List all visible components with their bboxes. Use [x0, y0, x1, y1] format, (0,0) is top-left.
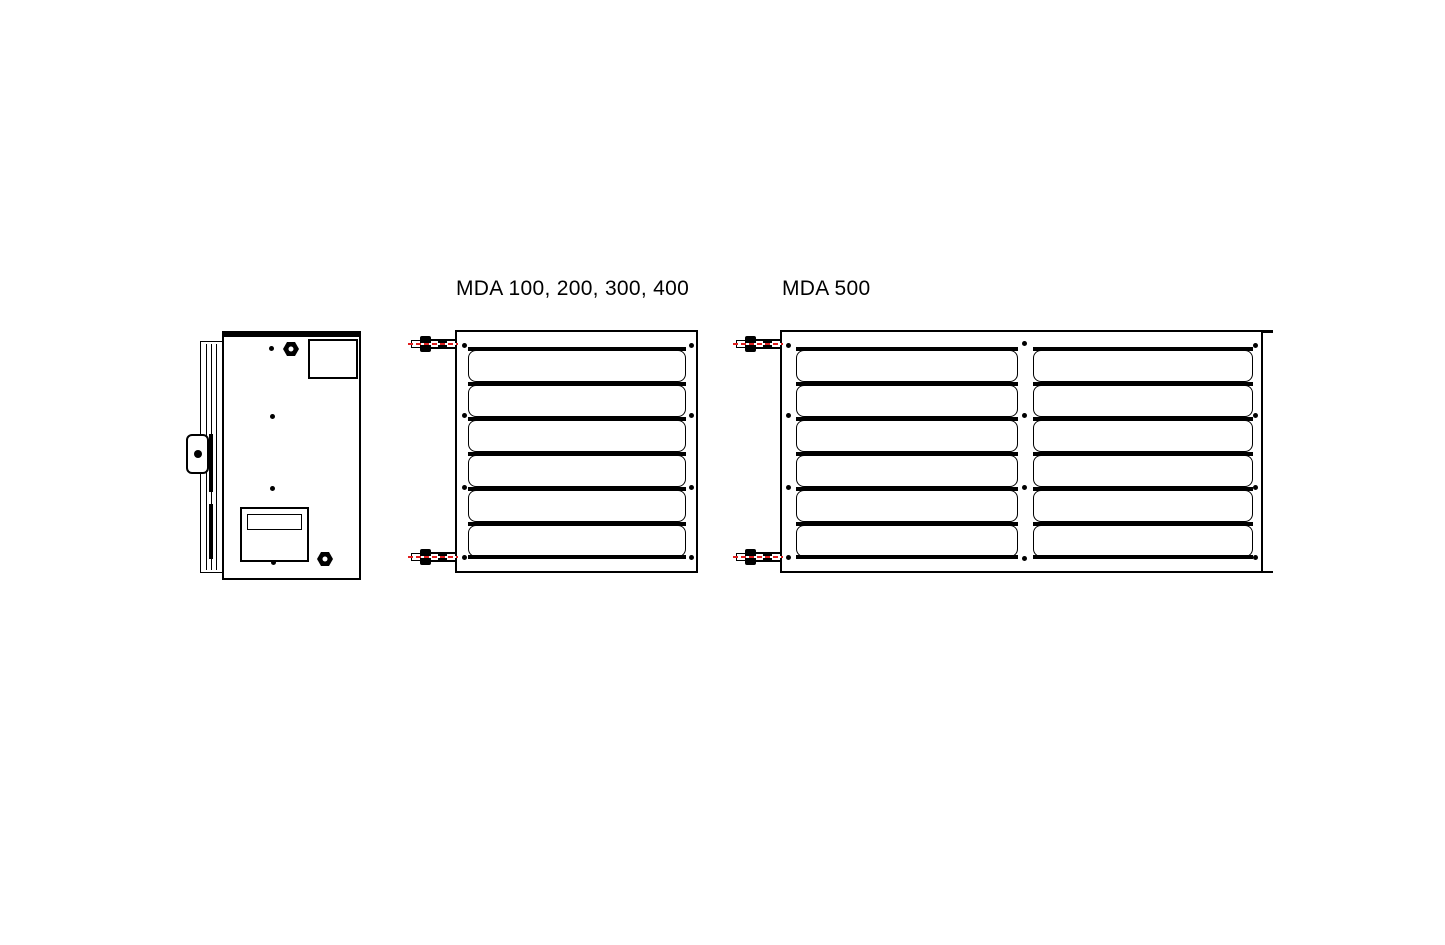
- hex-nut-icon: [283, 342, 299, 356]
- mda-small-title: MDA 100, 200, 300, 400: [456, 277, 689, 301]
- cabinet-body: [222, 331, 361, 580]
- cabinet-top-panel: [223, 332, 360, 337]
- mda-small-louvers: [468, 347, 686, 557]
- screw-dot: [462, 413, 467, 418]
- rating-plate-window: [247, 514, 302, 530]
- screw-dot: [689, 343, 694, 348]
- screw-dot: [786, 413, 791, 418]
- louver-slat: [796, 452, 1018, 487]
- pipe-centerline: [408, 343, 458, 346]
- louver-shadow-bar: [209, 504, 213, 559]
- screw-dot: [1253, 555, 1258, 560]
- mounting-bracket: [186, 434, 209, 474]
- screw-dot: [1253, 413, 1258, 418]
- screw-dot: [1022, 556, 1027, 561]
- screw-dot: [462, 343, 467, 348]
- louver-slat: [796, 417, 1018, 452]
- louver-slat: [468, 487, 686, 522]
- screw-dot: [689, 413, 694, 418]
- pipe-centerline: [733, 343, 783, 346]
- louver-slat: [796, 382, 1018, 417]
- technical-diagram-page: MDA 100, 200, 300, 400 MDA 500: [0, 0, 1445, 945]
- screw-dot: [1253, 343, 1258, 348]
- screw-dot: [689, 555, 694, 560]
- louver-slat: [468, 452, 686, 487]
- flange-tab-top: [1261, 330, 1273, 333]
- screw-dot: [270, 414, 275, 419]
- mda-500-title: MDA 500: [782, 277, 870, 301]
- screw-dot: [786, 555, 791, 560]
- louver-edge-line: [216, 344, 218, 570]
- louver-slat: [1033, 522, 1253, 557]
- screw-dot: [462, 555, 467, 560]
- screw-dot: [1253, 485, 1258, 490]
- pipe-connection-top: [736, 336, 782, 352]
- screw-dot: [271, 560, 276, 565]
- screw-dot: [1022, 341, 1027, 346]
- screw-dot: [269, 346, 274, 351]
- louver-shadow-bar: [209, 434, 213, 492]
- screw-dot: [786, 485, 791, 490]
- louver-slat: [468, 347, 686, 382]
- pipe-centerline: [733, 556, 783, 559]
- louver-slat: [1033, 417, 1253, 452]
- flange-tab-bottom: [1261, 571, 1273, 574]
- louver-slat: [796, 522, 1018, 557]
- mda-500-louvers-left: [796, 347, 1018, 557]
- hex-nut-icon: [317, 552, 333, 566]
- louver-slat: [1033, 382, 1253, 417]
- pipe-connection-top: [411, 336, 457, 352]
- rating-plate: [240, 507, 309, 562]
- screw-dot: [1022, 485, 1027, 490]
- louver-slat: [1033, 452, 1253, 487]
- mda-small-drawing: [455, 330, 698, 573]
- screw-dot: [462, 485, 467, 490]
- pipe-centerline: [408, 556, 458, 559]
- screw-dot: [270, 486, 275, 491]
- pipe-connection-bottom: [411, 549, 457, 565]
- louver-slat: [1033, 347, 1253, 382]
- screw-dot: [689, 485, 694, 490]
- terminal-box: [308, 339, 358, 379]
- louver-slat: [468, 522, 686, 557]
- mda-500-louvers-right: [1033, 347, 1253, 557]
- screw-dot: [786, 343, 791, 348]
- screw-dot: [1022, 413, 1027, 418]
- unit-side-view-drawing: [186, 328, 358, 578]
- louver-slat: [468, 382, 686, 417]
- louver-slat: [1033, 487, 1253, 522]
- louver-slat: [796, 487, 1018, 522]
- pipe-connection-bottom: [736, 549, 782, 565]
- louver-slat: [468, 417, 686, 452]
- mda-500-drawing: [780, 330, 1263, 573]
- bracket-hole: [194, 450, 202, 458]
- louver-slat: [796, 347, 1018, 382]
